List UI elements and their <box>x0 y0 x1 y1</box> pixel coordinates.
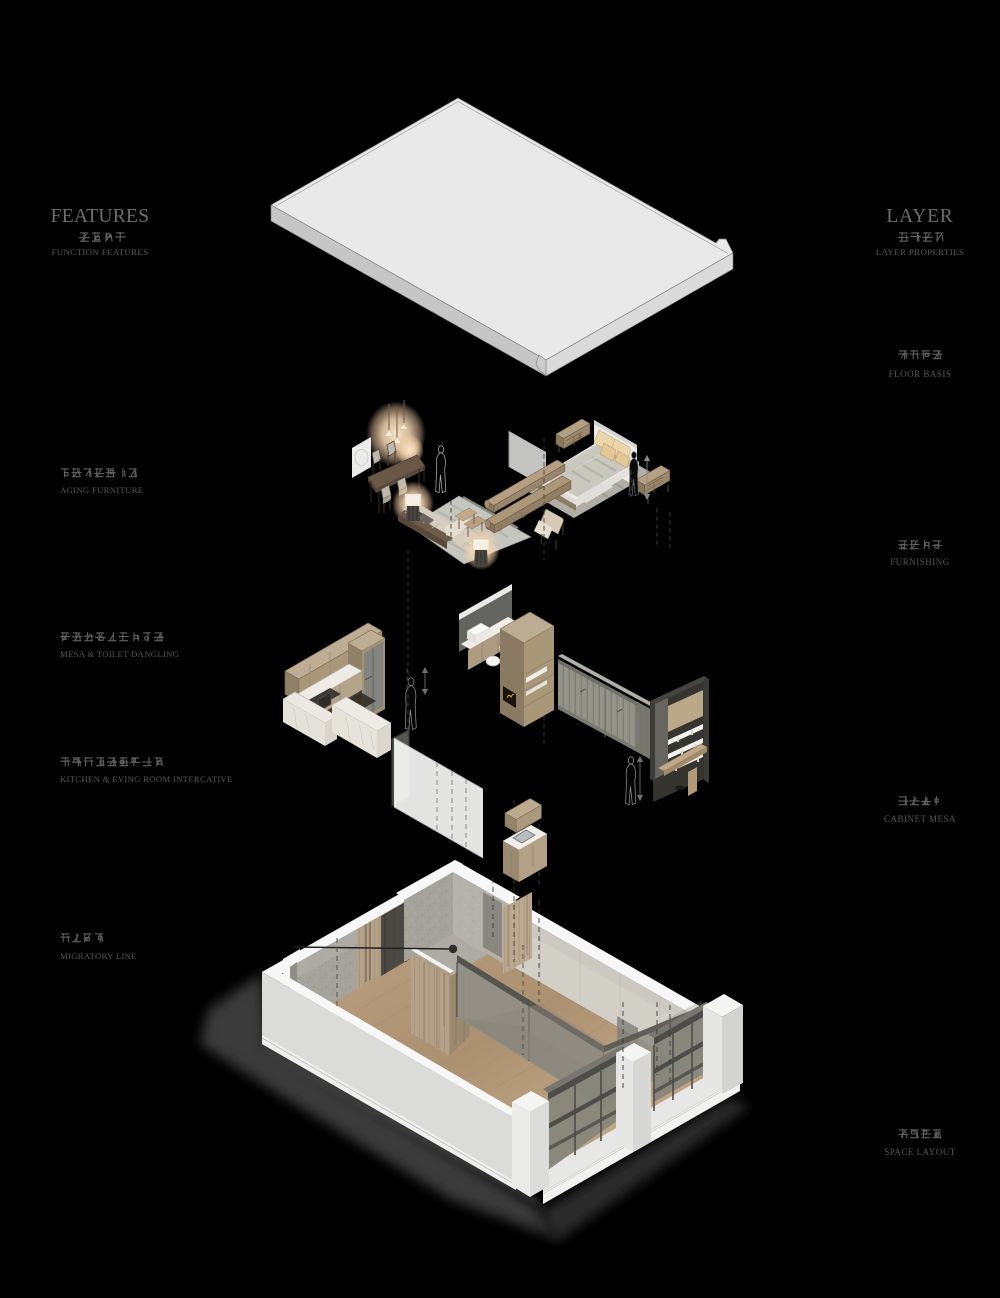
svg-text:LAYER PROPERTIES: LAYER PROPERTIES <box>876 247 964 257</box>
svg-text:AGING FURNITURE: AGING FURNITURE <box>60 485 143 495</box>
svg-text:MIGRATORY LINE: MIGRATORY LINE <box>60 951 137 961</box>
svg-text:CABINET MESA: CABINET MESA <box>884 814 956 824</box>
svg-text:FLOOR BASIS: FLOOR BASIS <box>889 369 952 379</box>
svg-text:FEATURES: FEATURES <box>51 206 150 227</box>
svg-text:MESA & TOILET DANGLING: MESA & TOILET DANGLING <box>60 649 179 659</box>
svg-text:FURNISHING: FURNISHING <box>890 557 950 567</box>
svg-text:FUNCTION FEATURES: FUNCTION FEATURES <box>52 247 149 257</box>
svg-text:KITCHEN & EVING ROOM INTERCATI: KITCHEN & EVING ROOM INTERCATIVE <box>60 774 233 784</box>
svg-text:LAYER: LAYER <box>886 206 953 227</box>
svg-text:SPACE LAYOUT: SPACE LAYOUT <box>884 1147 956 1157</box>
